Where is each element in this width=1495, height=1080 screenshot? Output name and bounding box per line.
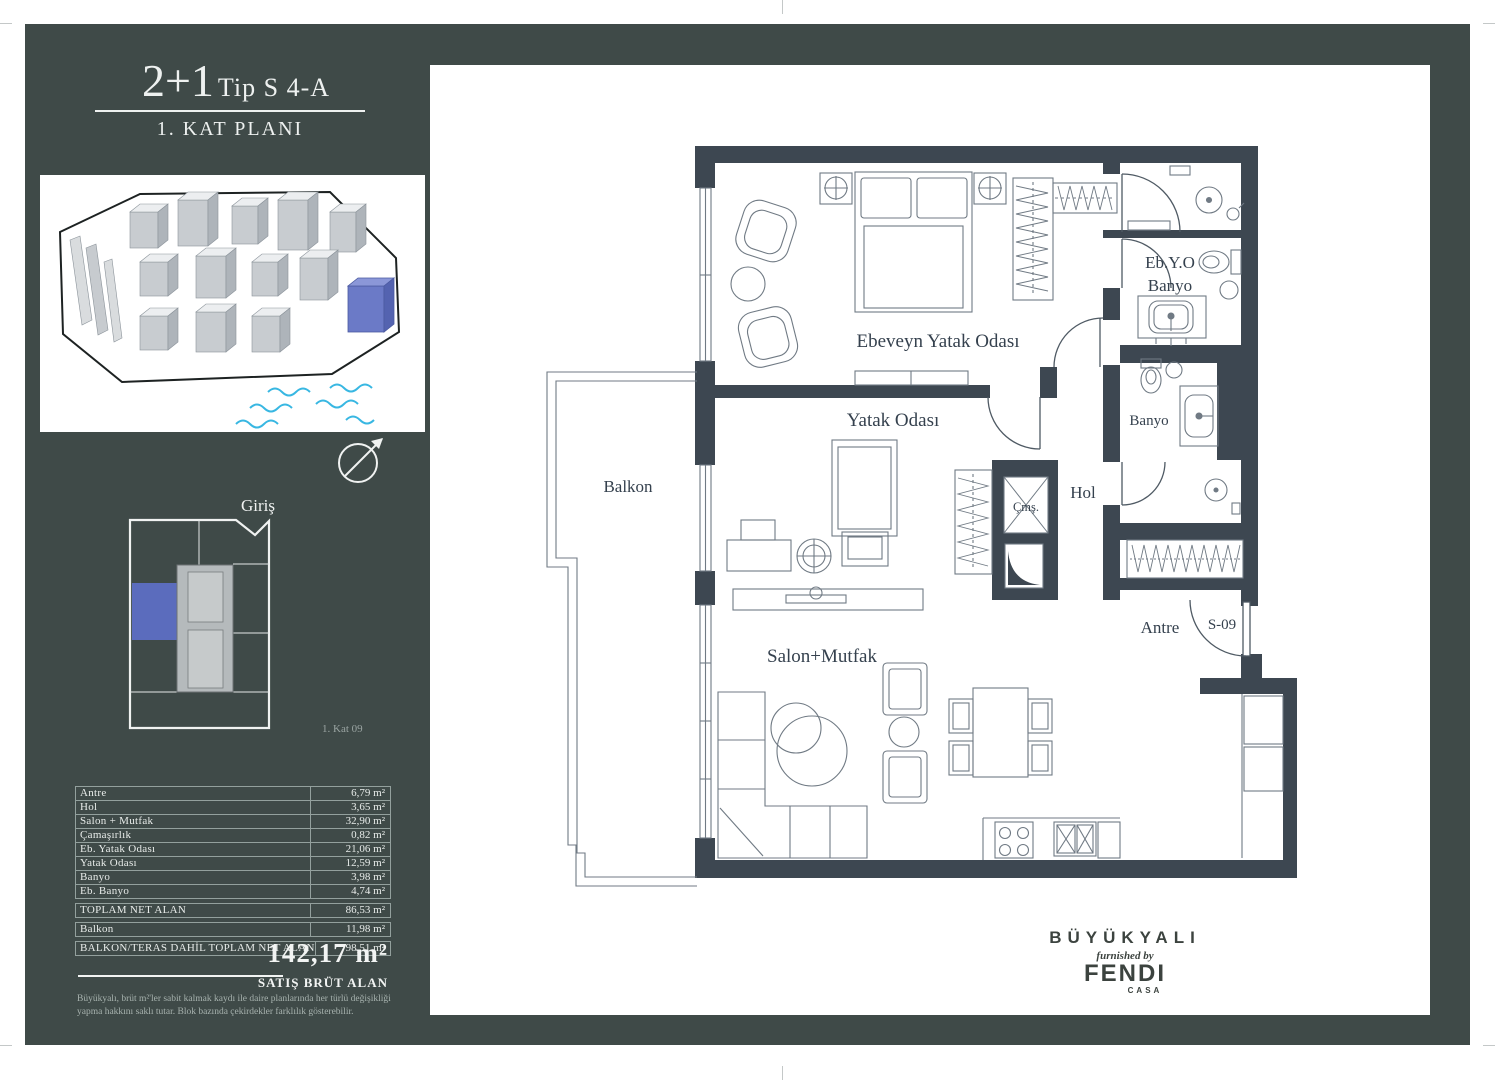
room-label-master-bath-1: Eb.Y.O <box>1145 253 1195 272</box>
bedroom-furniture <box>727 440 992 574</box>
selected-unit <box>132 583 177 640</box>
unit-number-label: S-09 <box>1208 617 1236 633</box>
disclaimer-text: Büyükyalı, brüt m²'ler sabit kalmak kayd… <box>77 993 407 1020</box>
room-label-bathroom: Banyo <box>1129 413 1168 429</box>
table-row: Eb. Yatak Odası21,06 m² <box>75 842 391 857</box>
room-label-hall: Hol <box>1070 483 1096 502</box>
windows <box>700 188 711 838</box>
brochure-page: 2+1 Tip S 4-A 1. KAT PLANI <box>0 0 1495 1080</box>
crop-mark <box>1483 1045 1495 1046</box>
crop-mark <box>782 1066 783 1080</box>
room-label-entry: Antre <box>1141 618 1180 637</box>
gross-area-value: 142,17 m² <box>75 938 388 969</box>
table-row: Çamaşırlık0,82 m² <box>75 828 391 843</box>
entrance-label: Giriş <box>241 496 275 515</box>
floor-plan: Balkon Ebeveyn Yatak Odası Yatak Odası E… <box>430 65 1430 1015</box>
room-label-master-bath-2: Banyo <box>1148 276 1192 295</box>
table-row-total: TOPLAM NET ALAN86,53 m² <box>75 903 391 918</box>
unit-locator: Giriş 1. Kat 09 <box>130 496 363 735</box>
table-row: Antre6,79 m² <box>75 786 391 801</box>
sidebar-graphics: Giriş 1. Kat 09 <box>0 0 430 760</box>
site-plan-3d-render <box>40 175 425 432</box>
room-label-bedroom: Yatak Odası <box>847 410 940 431</box>
table-row: Salon + Mutfak32,90 m² <box>75 814 391 829</box>
room-label-master-bedroom: Ebeveyn Yatak Odası <box>856 331 1019 352</box>
fendi-logo: FENDI <box>1040 962 1210 986</box>
fendi-casa-label: CASA <box>1080 986 1210 995</box>
laundry-closet <box>1004 477 1048 588</box>
table-row: Balkon11,98 m² <box>75 922 391 937</box>
divider-line <box>78 975 283 977</box>
area-table: Antre6,79 m² Hol3,65 m² Salon + Mutfak32… <box>75 787 391 956</box>
crop-mark <box>782 0 783 14</box>
gross-area-block: 142,17 m² SATIŞ BRÜT ALAN <box>75 938 388 991</box>
balcony-railing <box>547 372 697 886</box>
table-row: Eb. Banyo4,74 m² <box>75 884 391 899</box>
shower-room-fixtures <box>1128 166 1244 230</box>
core-block <box>177 565 233 692</box>
table-row: Hol3,65 m² <box>75 800 391 815</box>
brand-logo: BÜYÜKYALI furnished by FENDI CASA <box>1040 928 1210 995</box>
crop-mark <box>0 1045 12 1046</box>
room-label-living: Salon+Mutfak <box>767 646 877 667</box>
highlighted-building <box>348 278 394 332</box>
brand-name: BÜYÜKYALI <box>1040 928 1210 948</box>
table-row: Yatak Odası12,59 m² <box>75 856 391 871</box>
table-row: Banyo3,98 m² <box>75 870 391 885</box>
floor-unit-label: 1. Kat 09 <box>322 723 363 735</box>
room-label-balkon: Balkon <box>603 477 653 496</box>
living-room-furniture <box>718 587 1052 858</box>
plan-sheet: Balkon Ebeveyn Yatak Odası Yatak Odası E… <box>430 65 1430 1015</box>
entry-wardrobe <box>1127 540 1243 578</box>
gross-area-label: SATIŞ BRÜT ALAN <box>75 975 388 991</box>
north-arrow-icon <box>339 438 383 482</box>
room-label-laundry: Çmş. <box>1013 500 1039 514</box>
master-bedroom-furniture <box>731 172 1117 385</box>
crop-mark <box>1483 23 1495 24</box>
